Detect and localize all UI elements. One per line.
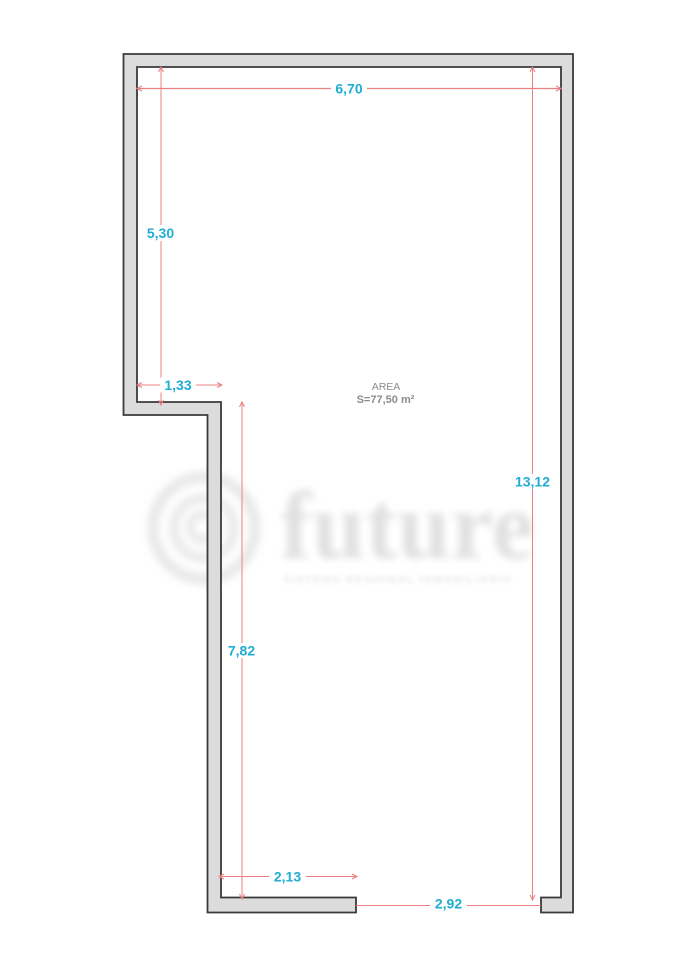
svg-text:5,30: 5,30 <box>147 225 174 241</box>
svg-text:13,12: 13,12 <box>515 474 550 490</box>
svg-text:6,70: 6,70 <box>335 81 362 97</box>
svg-text:S=77,50 m²: S=77,50 m² <box>357 394 415 406</box>
svg-text:AREA: AREA <box>372 381 401 393</box>
svg-text:1,33: 1,33 <box>164 377 191 393</box>
svg-text:future: future <box>280 472 534 579</box>
svg-text:SISTEMA REGIONAL INMOBILIARIA: SISTEMA REGIONAL INMOBILIARIA <box>283 574 512 586</box>
svg-text:7,82: 7,82 <box>228 643 255 659</box>
svg-text:2,13: 2,13 <box>274 869 301 885</box>
svg-text:2,92: 2,92 <box>435 896 462 912</box>
